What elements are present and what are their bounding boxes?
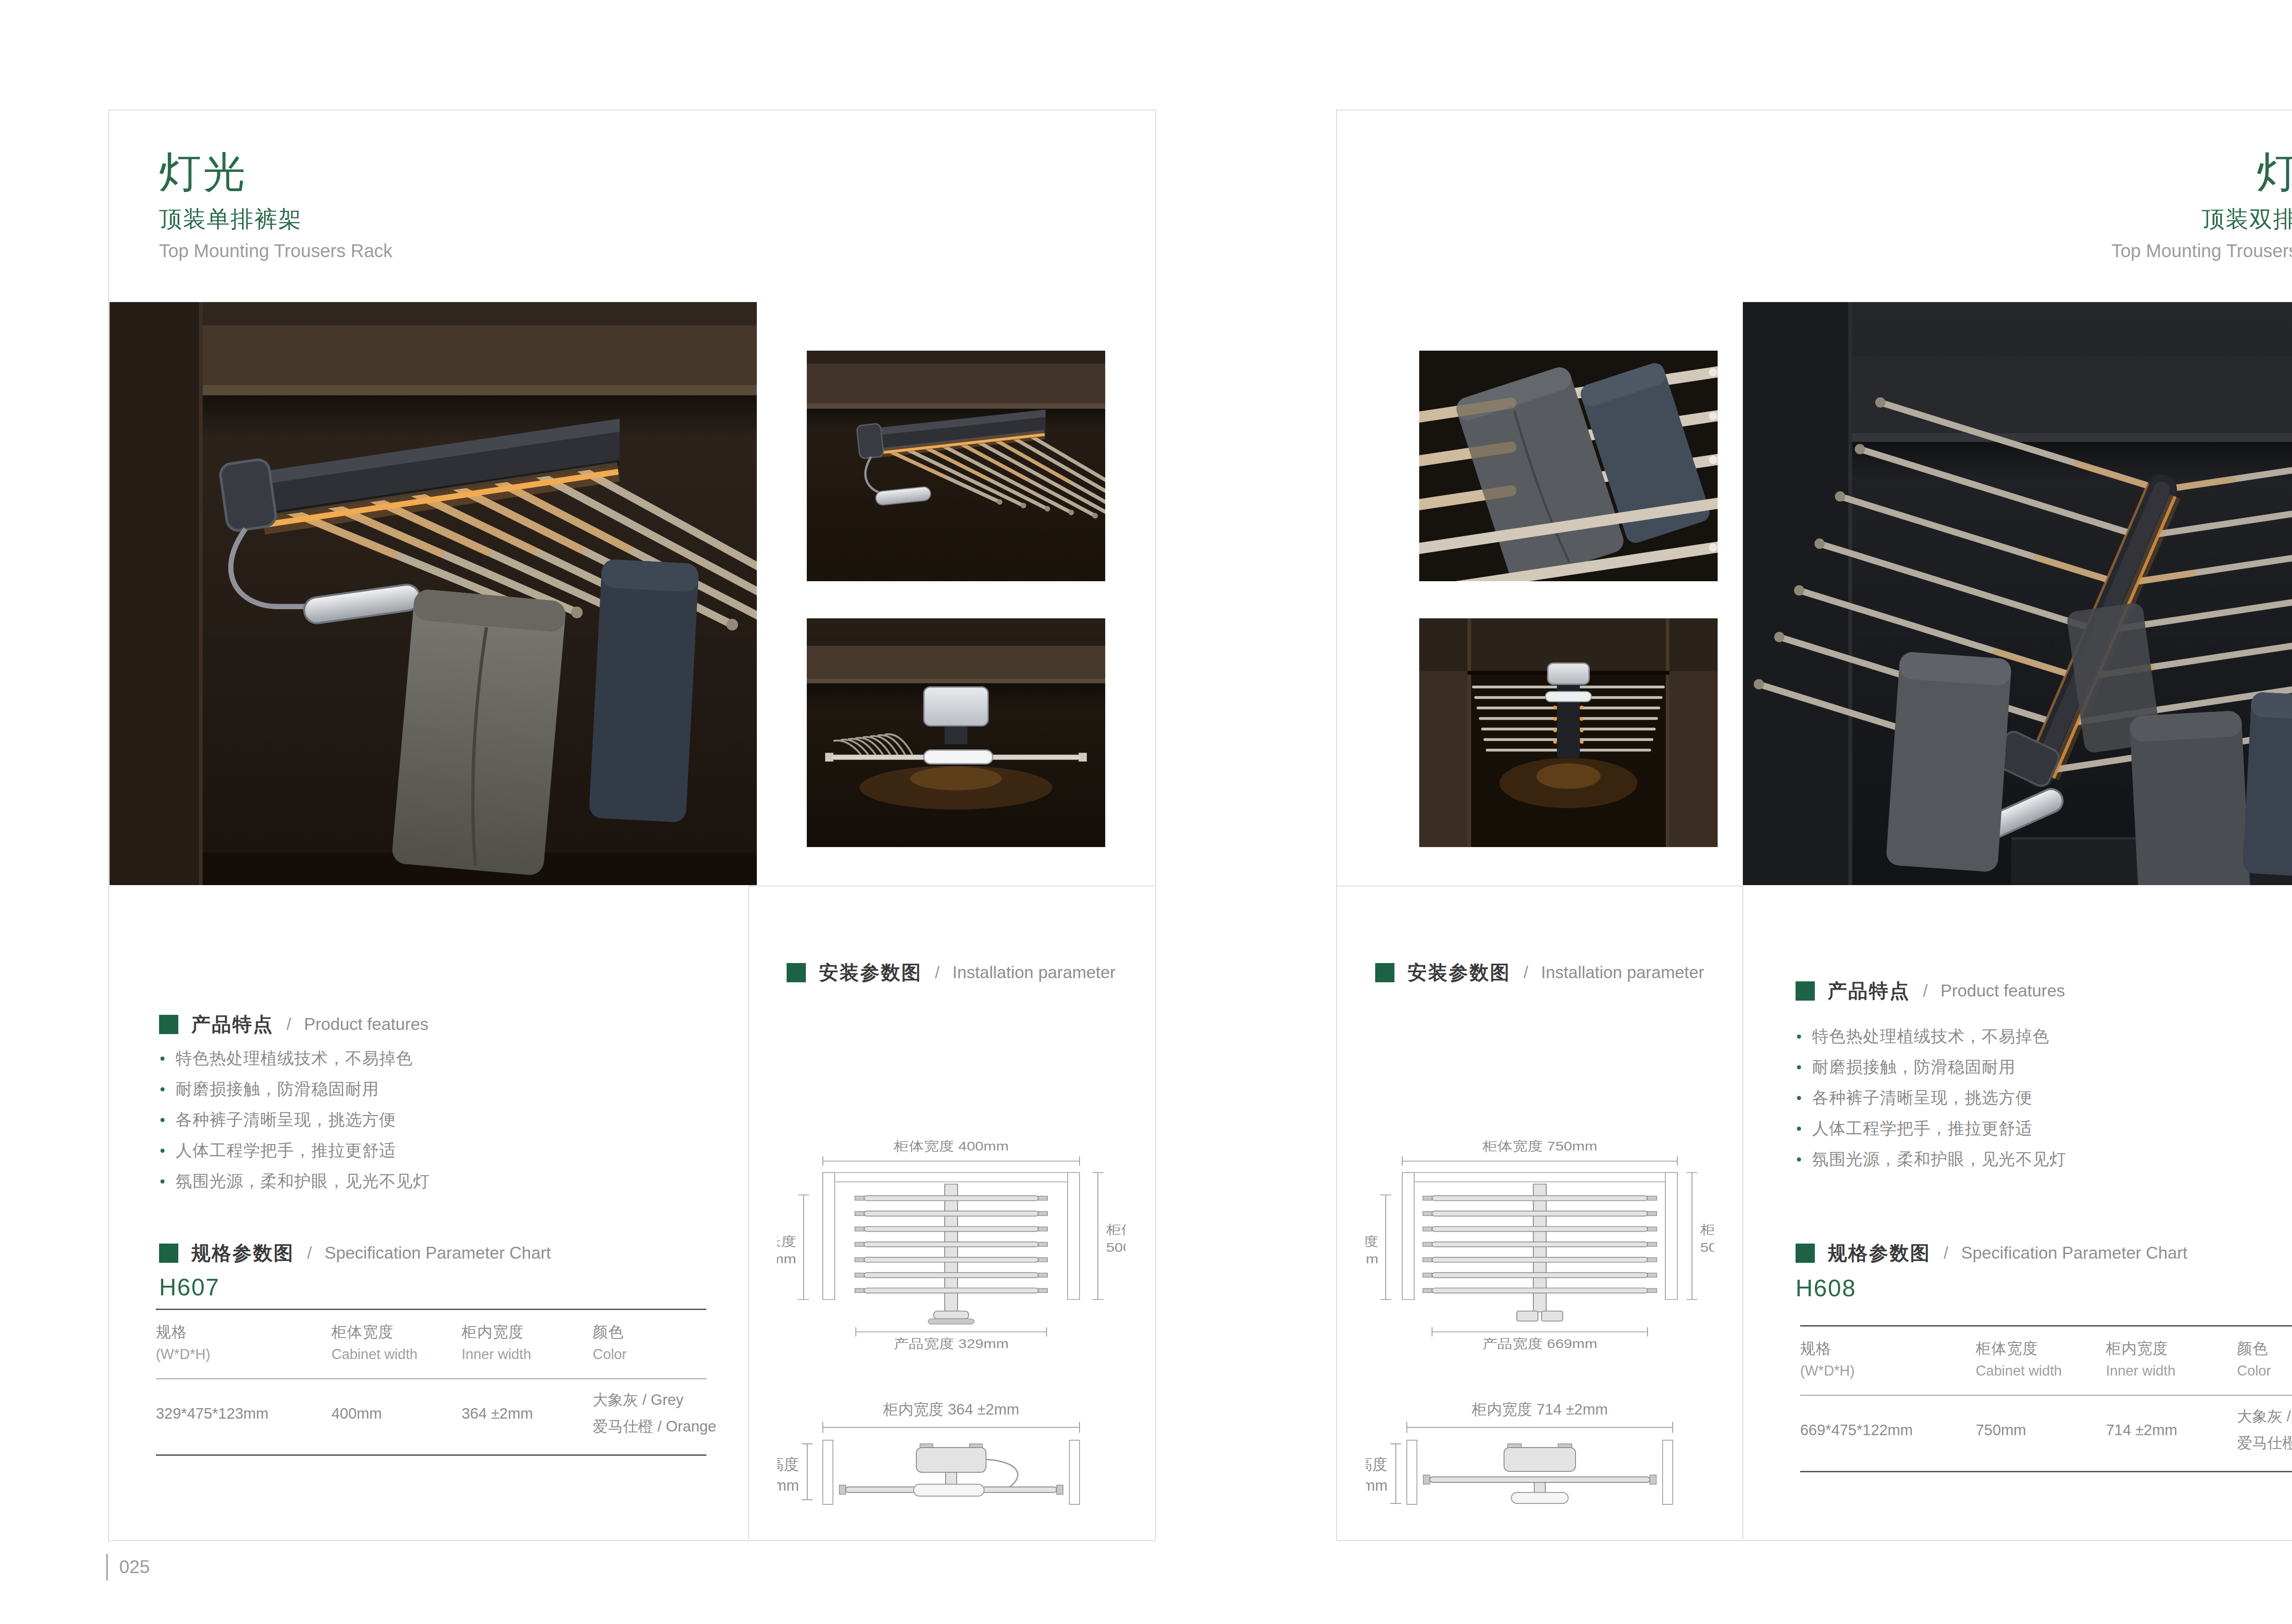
install-diagram-front-view: 柜内宽度 364 ±2mm 产品高度 123mm <box>777 1401 1125 1515</box>
svg-text:产品宽度 329mm: 产品宽度 329mm <box>893 1336 1008 1350</box>
table-rule-mid <box>156 1378 706 1379</box>
section-installation: 安装参数图 / Installation parameter <box>748 960 1154 985</box>
section-separator: / <box>935 963 939 982</box>
bullet-icon <box>160 1057 165 1061</box>
svg-text:产品长度: 产品长度 <box>1366 1234 1378 1248</box>
model-number: H608 <box>1796 1276 1856 1300</box>
feature-item: 人体工程学把手，推拉更舒适 <box>1797 1118 2033 1140</box>
table-rule-bottom <box>156 1454 706 1456</box>
rack-top-down-illustration <box>1419 618 1718 847</box>
section-title-en: Product features <box>1940 981 2065 1001</box>
svg-text:产品宽度 669mm: 产品宽度 669mm <box>1482 1336 1597 1350</box>
panel-top-divider <box>748 886 1154 886</box>
table-rule-top <box>1800 1325 2292 1327</box>
bullet-icon <box>1797 1127 1801 1131</box>
col-header-cn: 柜内宽度 <box>2106 1341 2168 1356</box>
double-rack-illustration <box>1743 302 2292 885</box>
section-square-icon <box>1796 1244 1815 1263</box>
col-header-cn: 柜体宽度 <box>1976 1341 2038 1356</box>
col-header-en: (W*D*H) <box>1800 1364 1855 1378</box>
section-title-en: Installation parameter <box>1541 963 1704 982</box>
col-header-cn: 颜色 <box>593 1324 624 1339</box>
spec-table: 规格 (W*D*H) 柜体宽度 Cabinet width 柜内宽度 Inner… <box>156 1309 706 1456</box>
feature-item: 特色热处理植绒技术，不易掉色 <box>160 1047 413 1070</box>
feature-item: 人体工程学把手，推拉更舒适 <box>160 1140 396 1162</box>
svg-text:产品高度: 产品高度 <box>777 1456 799 1473</box>
col-header-cn: 规格 <box>1800 1341 1831 1356</box>
page-subtitle-cn: 顶装单排裤架 <box>159 208 302 231</box>
section-square-icon <box>159 1244 178 1263</box>
cell-color-2: 爱马仕橙 / Orange <box>593 1419 716 1434</box>
col-header-en: Inner width <box>2106 1364 2176 1378</box>
cell-color-1: 大象灰 / Grey <box>593 1392 683 1407</box>
page-subtitle-en: Top Mounting Trousers Rack <box>159 242 392 260</box>
section-square-icon <box>159 1015 178 1034</box>
table-rule-mid <box>1800 1395 2292 1396</box>
col-header-en: Inner width <box>462 1347 531 1361</box>
install-diagram-top-view: 柜体宽度 400mm 柜体深度 500mm 产品长度 475mm <box>777 1137 1125 1353</box>
feature-item: 耐磨损接触，防滑稳固耐用 <box>160 1078 379 1101</box>
section-title-cn: 安装参数图 <box>1407 960 1510 985</box>
svg-text:柜体宽度 750mm: 柜体宽度 750mm <box>1482 1139 1597 1153</box>
section-installation: 安装参数图 / Installation parameter <box>1337 960 1742 985</box>
product-photo-thumb-2 <box>807 618 1105 847</box>
product-photo-thumb-1 <box>807 351 1105 581</box>
feature-item: 特色热处理植绒技术，不易掉色 <box>1797 1025 2050 1048</box>
svg-text:500mm: 500mm <box>1700 1240 1714 1255</box>
install-diagram-front-view: 柜内宽度 714 ±2mm 产品高度 122mm <box>1366 1401 1714 1515</box>
section-spec-chart: 规格参数图 / Specification Parameter Chart <box>1796 1240 2187 1266</box>
section-separator: / <box>1523 963 1528 982</box>
section-square-icon <box>1796 981 1815 1001</box>
feature-item: 氛围光源，柔和护眼，见光不见灯 <box>160 1170 430 1193</box>
column-divider <box>1742 886 1743 1539</box>
page-subtitle-en: Top Mounting Trousers Rack <box>2111 242 2292 260</box>
wardrobe-rack-illustration <box>110 302 757 885</box>
cell-cabinet-width: 400mm <box>331 1406 382 1421</box>
svg-text:柜内宽度 714 ±2mm: 柜内宽度 714 ±2mm <box>1471 1401 1608 1418</box>
col-header-en: Color <box>593 1347 627 1361</box>
product-photo-main <box>1743 302 2292 885</box>
rack-pulled-out-illustration <box>807 351 1105 581</box>
table-rule-top <box>156 1309 706 1310</box>
section-product-features: 产品特点 / Product features <box>1796 978 2065 1004</box>
feature-item: 各种裤子清晰呈现，挑选方便 <box>1797 1087 2033 1109</box>
page-number-bar <box>106 1554 108 1580</box>
section-title-en: Installation parameter <box>953 963 1116 982</box>
col-header-en: Cabinet width <box>1976 1364 2062 1378</box>
svg-text:500mm: 500mm <box>1106 1240 1125 1255</box>
svg-text:475mm: 475mm <box>1366 1252 1378 1266</box>
svg-text:柜体深度: 柜体深度 <box>1106 1222 1125 1237</box>
svg-text:柜体深度: 柜体深度 <box>1700 1222 1714 1237</box>
table-rule-bottom <box>1800 1471 2292 1472</box>
page-number-left: 025 <box>119 1558 150 1576</box>
page-title: 灯光 <box>2257 151 2292 193</box>
section-separator: / <box>286 1015 291 1034</box>
col-header-cn: 颜色 <box>2237 1341 2268 1356</box>
page-number-right: 026 <box>2269 1558 2292 1576</box>
section-separator: / <box>1944 1244 1948 1263</box>
left-page-card: 灯光 顶装单排裤架 Top Mounting Trousers Rack <box>108 110 1156 1541</box>
svg-text:123mm: 123mm <box>777 1477 799 1494</box>
product-photo-main <box>110 302 757 885</box>
page-title: 灯光 <box>159 151 247 193</box>
col-header-cn: 柜体宽度 <box>331 1324 394 1339</box>
section-title-en: Specification Parameter Chart <box>325 1244 551 1263</box>
panel-top-divider <box>1337 886 1742 886</box>
svg-text:产品高度: 产品高度 <box>1366 1456 1388 1473</box>
cell-size: 669*475*122mm <box>1800 1422 1913 1437</box>
model-number: H607 <box>159 1275 220 1299</box>
section-title-cn: 规格参数图 <box>191 1240 294 1266</box>
section-title-cn: 产品特点 <box>1828 978 1910 1004</box>
cell-cabinet-width: 750mm <box>1976 1422 2026 1437</box>
svg-text:122mm: 122mm <box>1366 1477 1388 1494</box>
right-page-card: 灯光 顶装双排裤架 Top Mounting Trousers Rack <box>1336 110 2292 1541</box>
bullet-icon <box>1797 1157 1801 1162</box>
section-separator: / <box>1923 981 1928 1001</box>
cell-size: 329*475*123mm <box>156 1406 269 1421</box>
svg-text:柜体宽度 400mm: 柜体宽度 400mm <box>893 1139 1008 1153</box>
install-diagram-top-view: 柜体宽度 750mm 柜体深度 500mm 产品长度 475mm <box>1366 1137 1714 1353</box>
rods-closeup-illustration <box>1419 351 1718 581</box>
spec-table: 规格 (W*D*H) 柜体宽度 Cabinet width 柜内宽度 Inner… <box>1800 1325 2292 1473</box>
col-header-cn: 规格 <box>156 1324 187 1339</box>
bullet-icon <box>160 1118 165 1122</box>
section-title-cn: 安装参数图 <box>819 960 922 985</box>
svg-text:柜内宽度 364 ±2mm: 柜内宽度 364 ±2mm <box>883 1401 1019 1418</box>
bullet-icon <box>160 1087 165 1091</box>
bullet-icon <box>1797 1096 1801 1100</box>
section-spec-chart: 规格参数图 / Specification Parameter Chart <box>159 1240 551 1266</box>
rack-front-view-illustration <box>807 618 1105 847</box>
section-title-en: Product features <box>304 1015 428 1034</box>
col-header-en: (W*D*H) <box>156 1347 210 1361</box>
cell-inner-width: 364 ±2mm <box>462 1406 533 1421</box>
feature-item: 各种裤子清晰呈现，挑选方便 <box>160 1109 396 1131</box>
product-photo-thumb-2 <box>1419 618 1718 847</box>
bullet-icon <box>160 1149 165 1153</box>
section-title-cn: 规格参数图 <box>1828 1240 1931 1266</box>
section-square-icon <box>787 963 806 982</box>
svg-text:475mm: 475mm <box>777 1252 796 1266</box>
section-title-en: Specification Parameter Chart <box>1961 1244 2187 1263</box>
cell-inner-width: 714 ±2mm <box>2106 1422 2177 1437</box>
page-subtitle-cn: 顶装双排裤架 <box>2202 208 2292 231</box>
section-square-icon <box>1375 963 1394 982</box>
bullet-icon <box>1797 1035 1801 1039</box>
section-title-cn: 产品特点 <box>191 1012 274 1037</box>
cell-color-2: 爱马仕橙 / Orange <box>2237 1435 2292 1450</box>
svg-text:产品长度: 产品长度 <box>777 1234 796 1248</box>
product-photo-thumb-1 <box>1419 351 1718 581</box>
cell-color-1: 大象灰 / Grey <box>2237 1409 2292 1424</box>
col-header-en: Color <box>2237 1364 2271 1378</box>
feature-item: 氛围光源，柔和护眼，见光不见灯 <box>1797 1148 2066 1171</box>
catalog-spread: 灯光 顶装单排裤架 Top Mounting Trousers Rack <box>0 0 2292 1624</box>
section-separator: / <box>307 1244 312 1263</box>
section-product-features: 产品特点 / Product features <box>159 1012 429 1037</box>
bullet-icon <box>1797 1065 1801 1069</box>
bullet-icon <box>160 1179 165 1184</box>
col-header-en: Cabinet width <box>331 1347 418 1361</box>
feature-item: 耐磨损接触，防滑稳固耐用 <box>1797 1056 2016 1079</box>
col-header-cn: 柜内宽度 <box>462 1324 524 1339</box>
